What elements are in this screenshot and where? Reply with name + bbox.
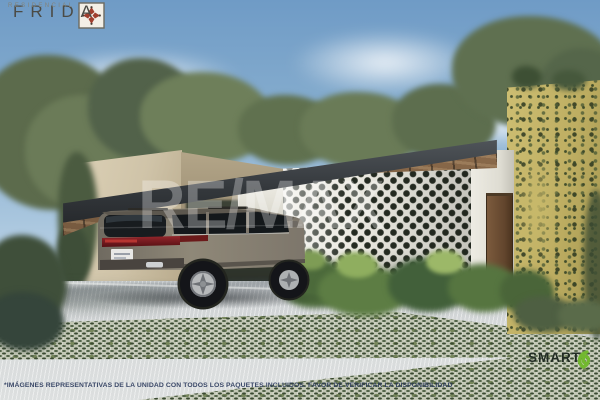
shrub: [558, 300, 600, 332]
frida-logo-subtitle: RESIDENCIAL: [6, 3, 74, 9]
vine-thin-patch: [513, 151, 562, 263]
smart-logo-name: SMART: [528, 350, 581, 365]
remax-watermark: RE/MAX: [138, 158, 458, 252]
vine-tip: [552, 70, 586, 90]
tropical-plant-light: [336, 252, 378, 278]
vine-tip: [512, 66, 542, 88]
tropical-plant-light: [426, 250, 464, 274]
disclaimer-text: *IMÁGENES REPRESENTATIVAS DE LA UNIDAD C…: [4, 382, 564, 389]
exhaust-tip: [146, 262, 163, 268]
render-image: RE/MAX FRIDA RESIDENCIAL: [0, 0, 600, 400]
rear-valance: [100, 258, 184, 270]
